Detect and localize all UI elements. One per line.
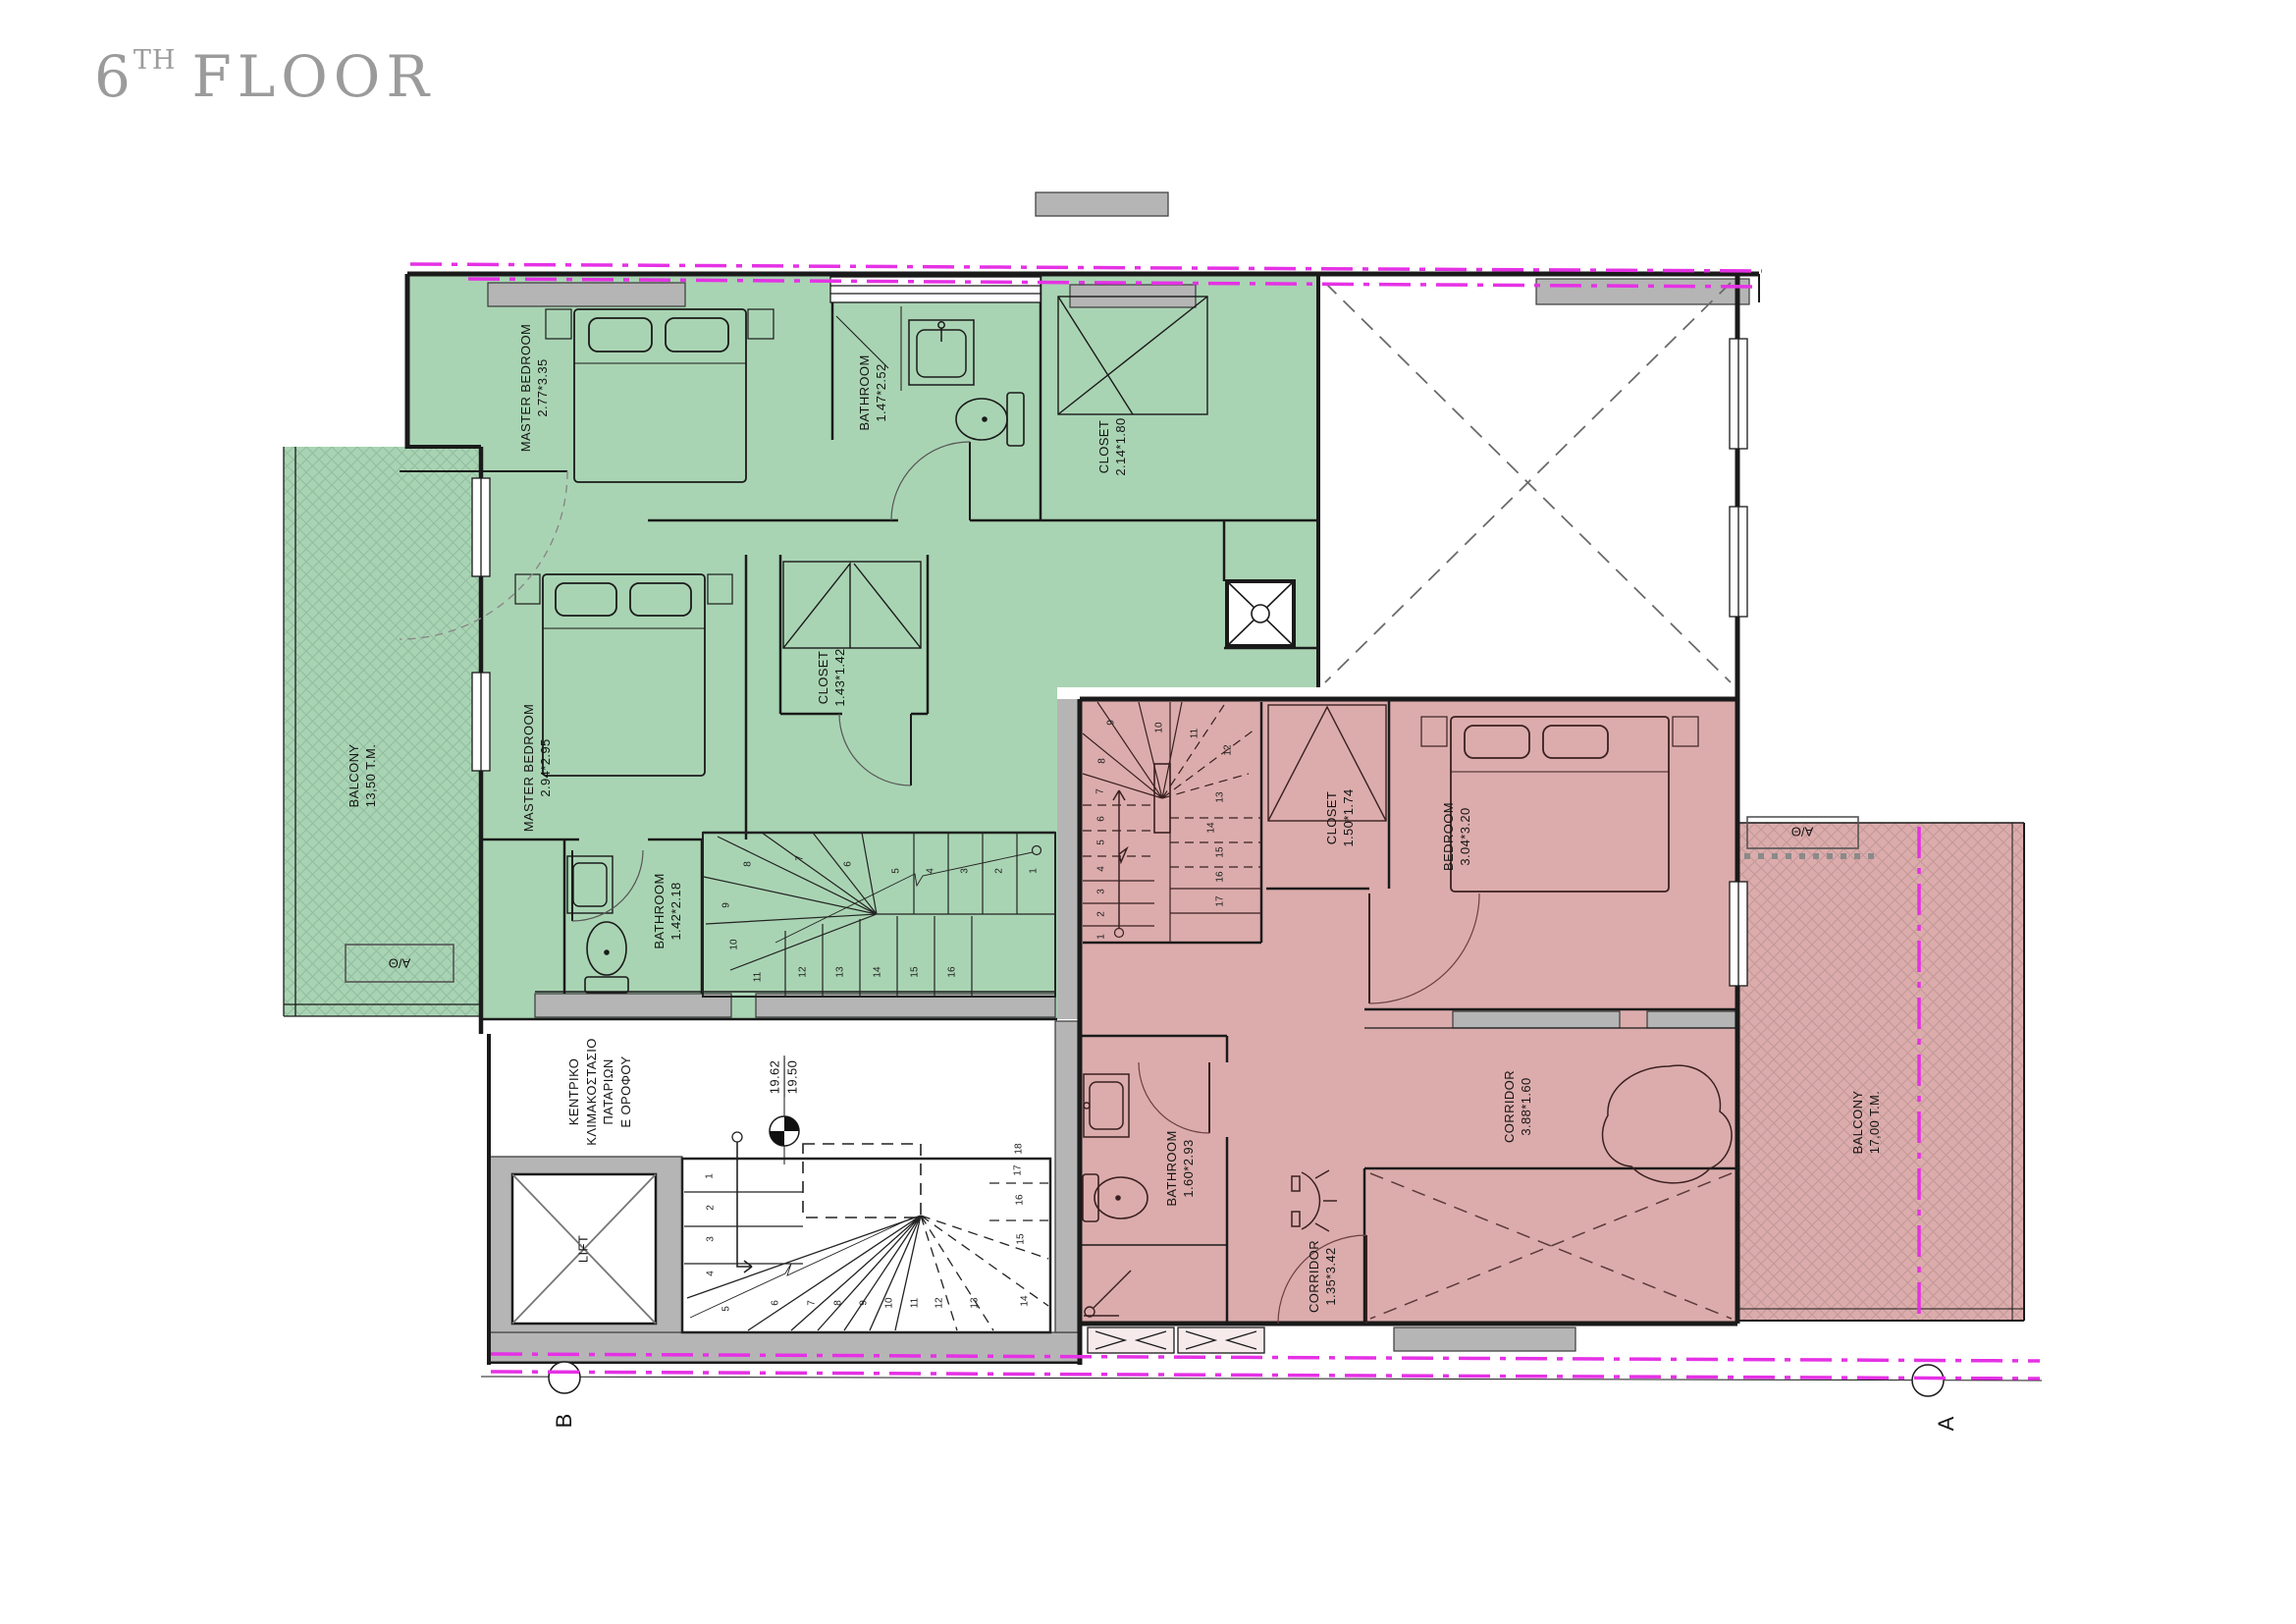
stair-tread-number: 12 — [934, 1297, 945, 1308]
stair-tread-number: 10 — [729, 939, 740, 949]
stair-tread-number: 2 — [994, 868, 1005, 874]
pink-apartment-area — [1080, 699, 1737, 1324]
stair-tread-number: 7 — [807, 1300, 818, 1306]
stair-tread-number: 17 — [1013, 1164, 1024, 1175]
stair-tread-number: 9 — [1106, 720, 1117, 726]
room-label-balcony-pink: BALCONY17,00 T.M. — [1850, 1091, 1884, 1155]
stair-tread-number: 15 — [1215, 846, 1226, 857]
floor-word: FLOOR — [191, 43, 435, 110]
floor-plan-drawing — [0, 0, 2296, 1624]
stair-tread-number: 6 — [771, 1300, 781, 1306]
stair-tread-number: 14 — [1206, 822, 1217, 833]
stair-tread-number: 3 — [1096, 889, 1107, 894]
stair-tread-number: 17 — [1215, 895, 1226, 906]
shaft-icon — [1227, 581, 1294, 646]
room-label-corridor-entry: CORRIDOR1.35*3.42 — [1307, 1240, 1340, 1313]
room-label-balcony-green: BALCONY13,50 T.M. — [347, 744, 380, 808]
room-label-closet-2: CLOSET1.43*1.42 — [816, 648, 849, 706]
stair-tread-number: 16 — [1015, 1194, 1026, 1205]
lift-label: LIFT — [576, 1235, 593, 1263]
void-room-cross — [1325, 283, 1731, 682]
stair-tread-number: 15 — [1016, 1233, 1027, 1244]
stair-tread-number: 1 — [705, 1173, 716, 1179]
room-label-closet-1: CLOSET2.14*1.80 — [1096, 417, 1130, 475]
stair-tread-number: 3 — [706, 1236, 717, 1242]
ac-unit-label: Α/Θ — [389, 956, 410, 971]
stair-tread-number: 13 — [835, 966, 846, 977]
stair-tread-number: 10 — [1154, 722, 1165, 732]
core-staircase-label: ΚΕΝΤΡΙΚΟ ΚΛΙΜΑΚΟΣΤΑΣΙΟ ΠΑΤΑΡΙΩΝ Ε ΟΡΟΦΟΥ — [565, 1038, 634, 1146]
section-marker-circle — [1912, 1365, 1944, 1396]
stair-tread-number: 11 — [1190, 729, 1201, 738]
stair-tread-number: 10 — [884, 1297, 895, 1308]
stair-tread-number: 18 — [1014, 1143, 1025, 1154]
stair-tread-number: 14 — [873, 966, 883, 977]
stair-tread-number: 9 — [859, 1300, 870, 1306]
floor-number: 6 — [94, 43, 133, 110]
stair-tread-number: 6 — [1096, 816, 1107, 822]
stair-tread-number: 11 — [910, 1298, 921, 1308]
pink-balcony-area — [1739, 823, 2024, 1321]
room-label-master-bedroom-2: MASTER BEDROOM2.94*2.95 — [521, 704, 555, 833]
floor-plan-sheet: 6THFLOOR MASTER BEDROOM2.77*3.35 BATHROO… — [0, 0, 2296, 1624]
room-label-corridor-main: CORRIDOR3.88*1.60 — [1502, 1070, 1535, 1143]
stair-tread-number: 2 — [706, 1205, 717, 1211]
room-label-bathroom-1: BATHROOM1.47*2.52 — [857, 354, 890, 430]
stair-tread-number: 13 — [970, 1297, 981, 1308]
stair-tread-number: 5 — [891, 868, 902, 874]
stair-tread-number: 11 — [753, 972, 764, 982]
stair-tread-number: 2 — [1096, 911, 1107, 917]
stair-tread-number: 8 — [833, 1300, 844, 1306]
stair-tread-number: 16 — [947, 966, 958, 977]
stair-tread-number: 16 — [1215, 871, 1226, 882]
page-title: 6THFLOOR — [94, 43, 435, 110]
section-marker-b: B — [552, 1414, 577, 1429]
stair-tread-number: 1 — [1096, 934, 1107, 940]
room-label-bedroom-pink: BEDROOM3.04*3.20 — [1441, 802, 1474, 871]
stair-tread-number: 3 — [960, 868, 971, 874]
stair-tread-number: 8 — [1097, 758, 1108, 764]
stair-tread-number: 7 — [1095, 788, 1106, 794]
level-marker-values: 19.62 19.50 — [768, 1057, 802, 1098]
room-label-closet-pink: CLOSET1.50*1.74 — [1324, 788, 1358, 846]
stair-tread-number: 15 — [910, 966, 921, 977]
stair-tread-number: 8 — [743, 861, 754, 867]
stair-tread-number: 5 — [1096, 839, 1107, 845]
ac-unit-label: Α/Θ — [1791, 825, 1813, 839]
stair-tread-number: 6 — [843, 861, 854, 867]
room-label-master-bedroom-1: MASTER BEDROOM2.77*3.35 — [518, 324, 552, 453]
section-marker-a: A — [1934, 1417, 1959, 1432]
stair-tread-number: 14 — [1020, 1295, 1031, 1306]
section-marker-circle — [549, 1362, 580, 1393]
stair-tread-number: 13 — [1215, 791, 1226, 802]
stair-tread-number: 1 — [1029, 868, 1040, 874]
stair-tread-number: 9 — [721, 902, 732, 908]
ordinal-suffix: TH — [133, 45, 177, 76]
stair-tread-number: 4 — [1096, 866, 1107, 872]
stair-tread-number: 7 — [795, 855, 806, 861]
stair-tread-number: 4 — [926, 868, 936, 874]
stair-tread-number: 12 — [798, 966, 809, 977]
wall-strip — [1057, 699, 1080, 1019]
room-label-bathroom-pink: BATHROOM1.60*2.93 — [1164, 1130, 1198, 1206]
stair-tread-number: 4 — [706, 1271, 717, 1276]
stair-tread-number: 12 — [1223, 744, 1234, 755]
room-label-bathroom-2: BATHROOM1.42*2.18 — [652, 873, 685, 948]
green-balcony-area — [284, 447, 481, 1016]
stair-tread-number: 5 — [721, 1306, 732, 1312]
